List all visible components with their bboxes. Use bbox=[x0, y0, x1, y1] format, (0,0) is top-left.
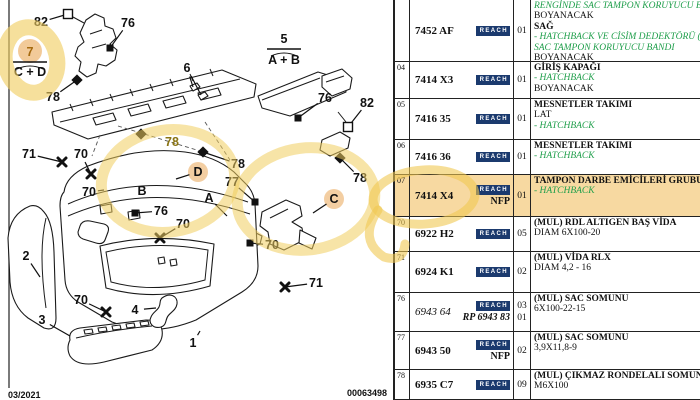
badge-stack: REACH bbox=[476, 75, 510, 85]
part-number-cell: 7414 X3REACH bbox=[410, 62, 514, 98]
date-code: 03/2021 bbox=[8, 390, 41, 400]
description-line: - HATCHBACK bbox=[534, 121, 700, 131]
part-number-cell: 6924 K1REACH bbox=[410, 252, 514, 292]
description-cell: (MUL) SAC SOMUNU3,9X11,8-9 bbox=[531, 332, 700, 369]
callout-82: 82 bbox=[34, 10, 72, 30]
part-number: 7416 36 bbox=[415, 151, 451, 163]
callout-label: 82 bbox=[360, 96, 374, 110]
filled-square-marker bbox=[295, 115, 302, 122]
description-cell: RENGİNDE SAC TAMPON KORUYUCU BANDIBOYANA… bbox=[531, 0, 700, 61]
callout-label: 78 bbox=[165, 135, 179, 149]
callout-1: 1 bbox=[190, 331, 200, 350]
row-number-cell: 04 bbox=[395, 62, 410, 98]
description-line: - HATCHBACK bbox=[534, 73, 700, 83]
table-row[interactable]: 766943 64REACHRP 6943 830301(MUL) SAC SO… bbox=[395, 293, 700, 332]
callout-label: 78 bbox=[231, 157, 245, 171]
quantity-cell: 05 bbox=[514, 217, 531, 251]
description-line: TAMPON DARBE EMİCİLERİ GRUBU bbox=[534, 176, 700, 186]
description-cell: GİRİŞ KAPAĞI- HATCHBACKBOYANACAK bbox=[531, 62, 700, 98]
nfp-flag: NFP bbox=[491, 351, 510, 362]
quantity-cell: 02 bbox=[514, 252, 531, 292]
callout-label: 78 bbox=[353, 171, 367, 185]
part-number-cell: 7416 35REACH bbox=[410, 99, 514, 139]
callout-71: 71 bbox=[22, 147, 66, 166]
badge-stack: REACHNFP bbox=[476, 340, 510, 362]
group-callout-5: 5A + B bbox=[267, 32, 301, 67]
callout-label: 82 bbox=[34, 15, 48, 29]
quantity-value: 05 bbox=[517, 229, 527, 239]
row-number-cell: 05 bbox=[395, 99, 410, 139]
replacement-part-number: RP 6943 83 bbox=[463, 312, 510, 323]
group-callout-7: 7C + D bbox=[13, 39, 47, 79]
part-number: 7452 AF bbox=[415, 25, 454, 37]
callout-label: 78 bbox=[46, 90, 60, 104]
reach-badge[interactable]: REACH bbox=[476, 340, 510, 350]
reach-badge[interactable]: REACH bbox=[476, 75, 510, 85]
callout-label: 70 bbox=[176, 217, 190, 231]
description-line: - HATCHBACK bbox=[534, 186, 700, 196]
description-line: BOYANACAK bbox=[534, 84, 700, 94]
callout-label: 76 bbox=[121, 16, 135, 30]
description-cell: (MUL) RDL ALTIGEN BAŞ VİDADIAM 6X100-20 bbox=[531, 217, 700, 251]
description-line: MESNETLER TAKIMI bbox=[534, 100, 700, 110]
callout-label: 3 bbox=[39, 313, 46, 327]
description-line: 6X100-22-15 bbox=[534, 304, 700, 314]
badge-stack: REACH bbox=[476, 380, 510, 390]
filled-square-marker bbox=[107, 45, 114, 52]
quantity-value: 01 bbox=[517, 75, 527, 85]
callout-label: B bbox=[137, 184, 146, 198]
quantity-value: 09 bbox=[517, 380, 527, 390]
description-cell: (MUL) ÇIKMAZ RONDELALI SOMUNM6X100 bbox=[531, 370, 700, 399]
description-line: M6X100 bbox=[534, 381, 700, 391]
group-letters: A + B bbox=[268, 53, 300, 67]
filled-square-marker bbox=[132, 210, 139, 217]
badge-stack: REACH bbox=[476, 267, 510, 277]
callout-78: 78 bbox=[46, 74, 83, 104]
description-line: BOYANACAK bbox=[534, 11, 700, 21]
callout-label: C bbox=[329, 192, 338, 206]
description-cell: (MUL) VİDA RLXDIAM 4,2 - 16 bbox=[531, 252, 700, 292]
description-cell: TAMPON DARBE EMİCİLERİ GRUBU- HATCHBACK bbox=[531, 175, 700, 216]
callout-label: A bbox=[204, 191, 213, 205]
part-number: 6935 C7 bbox=[415, 379, 453, 391]
parts-diagram: 827678676827871707078BD76707778AC7071704… bbox=[0, 0, 393, 400]
badge-stack: REACHNFP bbox=[476, 185, 510, 207]
part-number: 7414 X4 bbox=[415, 190, 453, 202]
row-number-cell: 06 bbox=[395, 140, 410, 174]
quantity-cell: 0301 bbox=[514, 293, 531, 331]
callout-71: 71 bbox=[281, 276, 323, 291]
quantity-value: 01 bbox=[517, 313, 527, 323]
diamond-marker bbox=[71, 74, 82, 85]
description-line: SAĞ bbox=[534, 22, 700, 32]
row-number-cell: 77 bbox=[395, 332, 410, 369]
description-cell: MESNETLER TAKIMILAT- HATCHBACK bbox=[531, 99, 700, 139]
description-line: GİRİŞ KAPAĞI bbox=[534, 63, 700, 73]
reach-badge[interactable]: REACH bbox=[476, 26, 510, 36]
reinforcement-beam bbox=[52, 70, 256, 139]
callout-label: 70 bbox=[82, 185, 96, 199]
callout-78: 78 bbox=[334, 152, 367, 185]
part-number: 7414 X3 bbox=[415, 74, 453, 86]
part-number-cell: 7414 X4REACHNFP bbox=[410, 175, 514, 216]
description-line: DIAM 4,2 - 16 bbox=[534, 263, 700, 273]
table-row[interactable]: 067416 36REACH01MESNETLER TAKIMI- HATCHB… bbox=[395, 140, 700, 175]
badge-stack: REACH bbox=[476, 26, 510, 36]
filled-square-marker bbox=[252, 199, 259, 206]
quantity-value: 01 bbox=[517, 114, 527, 124]
quantity-value: 02 bbox=[517, 267, 527, 277]
callout-label: 76 bbox=[154, 204, 168, 218]
callout-label: D bbox=[193, 165, 202, 179]
nfp-flag: NFP bbox=[491, 196, 510, 207]
row-number-cell: 78 bbox=[395, 370, 410, 399]
quantity-value: 01 bbox=[517, 152, 527, 162]
callout-label: 6 bbox=[184, 61, 191, 75]
description-line: (MUL) RDL ALTIGEN BAŞ VİDA bbox=[534, 218, 700, 228]
table-row[interactable]: 057416 35REACH01MESNETLER TAKIMILAT- HAT… bbox=[395, 99, 700, 140]
description-line: - HATCHBACK bbox=[534, 151, 700, 161]
row-number-cell bbox=[395, 0, 410, 61]
reach-badge[interactable]: REACH bbox=[476, 380, 510, 390]
quantity-value: 02 bbox=[517, 346, 527, 356]
badge-stack: REACH bbox=[476, 114, 510, 124]
description-line: DIAM 6X100-20 bbox=[534, 228, 700, 238]
callout-label: 1 bbox=[190, 336, 197, 350]
part-number-cell: 6935 C7REACH bbox=[410, 370, 514, 399]
table-row[interactable]: 786935 C7REACH09(MUL) ÇIKMAZ RONDELALI S… bbox=[395, 370, 700, 400]
row-number-cell: 76 bbox=[395, 293, 410, 331]
reach-badge[interactable]: REACH bbox=[476, 267, 510, 277]
group-letters: C + D bbox=[14, 65, 46, 79]
open-square-marker bbox=[64, 10, 73, 19]
part-number: 7416 35 bbox=[415, 113, 451, 125]
callout-label: 70 bbox=[74, 147, 88, 161]
group-number: 7 bbox=[27, 45, 34, 59]
table-row[interactable]: 7452 AFREACH01RENGİNDE SAC TAMPON KORUYU… bbox=[395, 0, 700, 62]
parts-table: 7452 AFREACH01RENGİNDE SAC TAMPON KORUYU… bbox=[393, 0, 700, 400]
quantity-cell: 01 bbox=[514, 175, 531, 216]
description-line: 3,9X11,8-9 bbox=[534, 343, 700, 353]
table-row[interactable]: 047414 X3REACH01GİRİŞ KAPAĞI- HATCHBACKB… bbox=[395, 62, 700, 99]
callout-label: 71 bbox=[22, 147, 36, 161]
part-number-cell: 6943 64REACHRP 6943 83 bbox=[410, 293, 514, 331]
table-row[interactable]: 706922 H2REACH05(MUL) RDL ALTIGEN BAŞ Vİ… bbox=[395, 217, 700, 252]
description-cell: MESNETLER TAKIMI- HATCHBACK bbox=[531, 140, 700, 174]
reach-badge[interactable]: REACH bbox=[476, 114, 510, 124]
diagram-drawing bbox=[8, 14, 352, 364]
callout-label: 70 bbox=[265, 238, 279, 252]
part-number-cell: 6943 50REACHNFP bbox=[410, 332, 514, 369]
description-line: (MUL) ÇIKMAZ RONDELALI SOMUN bbox=[534, 371, 700, 381]
description-line: MESNETLER TAKIMI bbox=[534, 141, 700, 151]
quantity-cell: 01 bbox=[514, 99, 531, 139]
part-number: 6943 64 bbox=[415, 306, 451, 318]
corner-piece bbox=[8, 206, 56, 329]
cross-marker bbox=[58, 158, 66, 166]
callout-label: 76 bbox=[318, 91, 332, 105]
description-line: BOYANACAK bbox=[534, 53, 700, 61]
filled-square-marker bbox=[247, 240, 254, 247]
quantity-value: 01 bbox=[517, 191, 527, 201]
description-line: LAT bbox=[534, 110, 700, 120]
callout-label: 4 bbox=[132, 303, 139, 317]
description-line: - HATCHBACK VE CİSİM DEDEKTÖRÜ (M bbox=[534, 32, 700, 42]
badge-stack: REACH bbox=[476, 229, 510, 239]
description-line: (MUL) SAC SOMUNU bbox=[534, 333, 700, 343]
part-number-cell: 6922 H2REACH bbox=[410, 217, 514, 251]
table-row[interactable]: 077414 X4REACHNFP01TAMPON DARBE EMİCİLER… bbox=[395, 175, 700, 217]
quantity-cell: 01 bbox=[514, 140, 531, 174]
part-number: 6943 50 bbox=[415, 345, 451, 357]
part-number-cell: 7452 AFREACH bbox=[410, 0, 514, 61]
group-number: 5 bbox=[281, 32, 288, 46]
callout-78: 78 bbox=[165, 135, 179, 149]
quantity-value: 01 bbox=[517, 26, 527, 36]
quantity-cell: 02 bbox=[514, 332, 531, 369]
quantity-value: 03 bbox=[517, 301, 527, 311]
row-number-cell: 70 bbox=[395, 217, 410, 251]
part-number: 6922 H2 bbox=[415, 228, 454, 240]
row-number-cell: 71 bbox=[395, 252, 410, 292]
description-cell: (MUL) SAC SOMUNU6X100-22-15 bbox=[531, 293, 700, 331]
quantity-cell: 01 bbox=[514, 0, 531, 61]
badge-stack: REACHRP 6943 83 bbox=[463, 301, 510, 323]
row-number-cell: 07 bbox=[395, 175, 410, 216]
reach-badge[interactable]: REACH bbox=[476, 229, 510, 239]
callout-label: 71 bbox=[309, 276, 323, 290]
table-row[interactable]: 716924 K1REACH02(MUL) VİDA RLXDIAM 4,2 -… bbox=[395, 252, 700, 293]
callout-b: B bbox=[137, 184, 146, 198]
mounting-bracket bbox=[320, 132, 350, 156]
description-line: RENGİNDE SAC TAMPON KORUYUCU BANDI bbox=[534, 1, 700, 11]
callout-label: 2 bbox=[23, 249, 30, 263]
callout-label: 70 bbox=[74, 293, 88, 307]
reach-badge[interactable]: REACH bbox=[476, 152, 510, 162]
quantity-cell: 09 bbox=[514, 370, 531, 399]
reach-badge[interactable]: REACH bbox=[476, 185, 510, 195]
open-square-marker bbox=[344, 123, 353, 132]
callout-82: 82 bbox=[344, 96, 374, 132]
callout-c: C bbox=[313, 189, 344, 213]
description-line: (MUL) SAC SOMUNU bbox=[534, 294, 700, 304]
figure-number: 00063498 bbox=[347, 388, 387, 398]
reach-badge[interactable]: REACH bbox=[476, 301, 510, 311]
callout-label: 77 bbox=[225, 175, 239, 189]
quantity-cell: 01 bbox=[514, 62, 531, 98]
parts-catalog-page: 827678676827871707078BD76707778AC7071704… bbox=[0, 0, 700, 400]
part-number-cell: 7416 36REACH bbox=[410, 140, 514, 174]
table-row[interactable]: 776943 50REACHNFP02(MUL) SAC SOMUNU3,9X1… bbox=[395, 332, 700, 370]
description-line: (MUL) VİDA RLX bbox=[534, 253, 700, 263]
part-number: 6924 K1 bbox=[415, 266, 454, 278]
description-line: SAC TAMPON KORUYUCU BANDI bbox=[534, 43, 700, 53]
badge-stack: REACH bbox=[476, 152, 510, 162]
